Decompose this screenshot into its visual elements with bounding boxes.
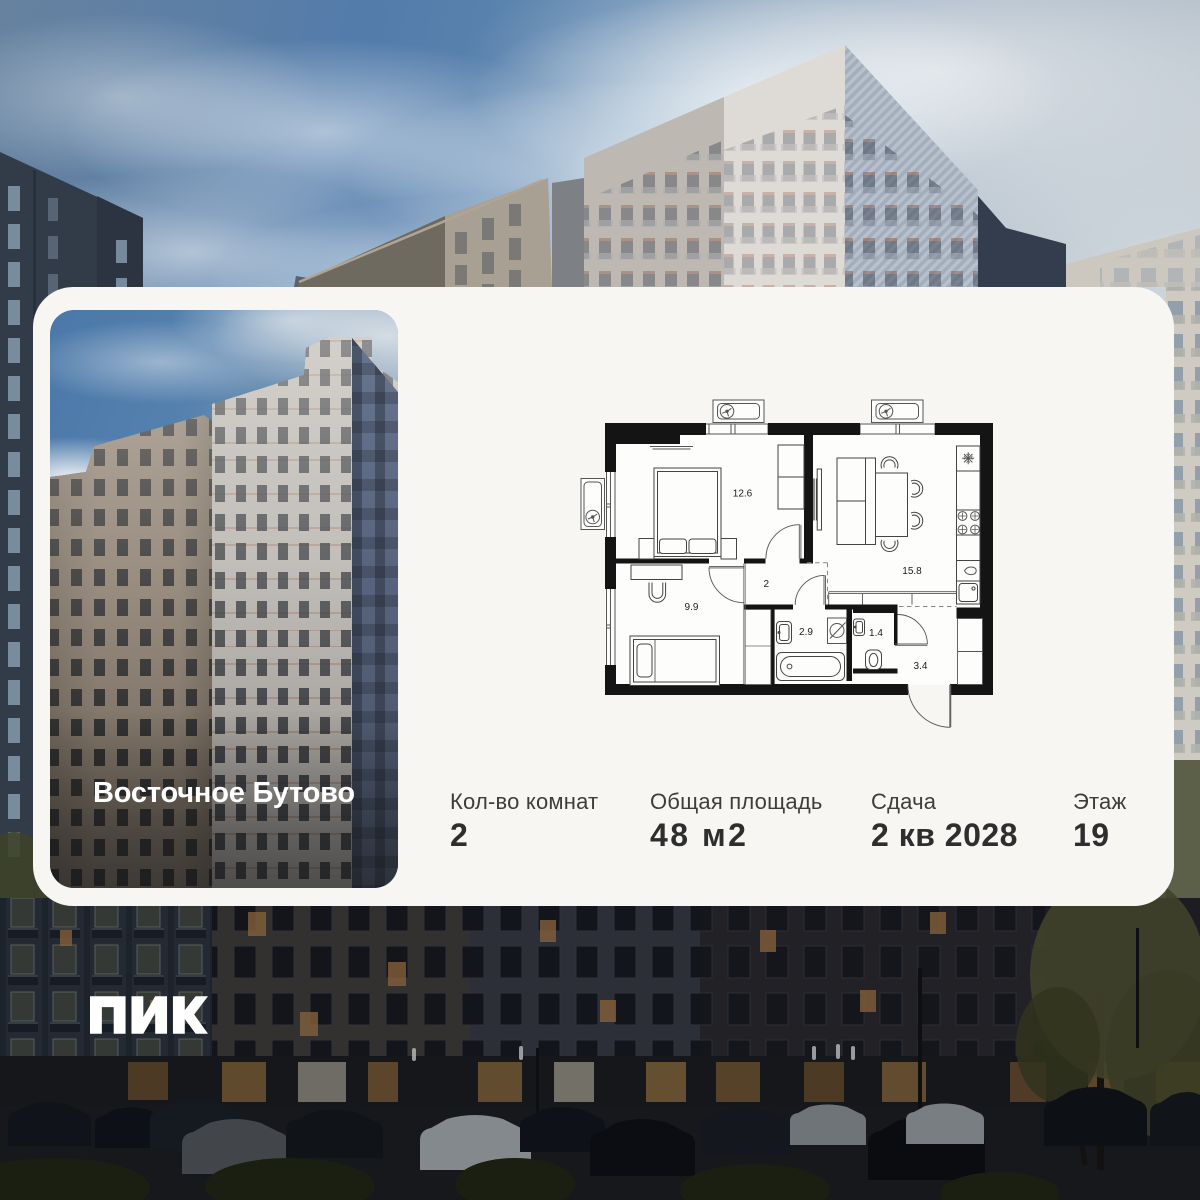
svg-text:1.4: 1.4	[869, 628, 883, 639]
svg-text:15.8: 15.8	[902, 566, 922, 577]
svg-text:2: 2	[764, 579, 770, 590]
svg-text:9.9: 9.9	[685, 602, 699, 613]
svg-text:12.6: 12.6	[733, 489, 753, 500]
svg-text:3.4: 3.4	[914, 661, 928, 672]
svg-text:2.9: 2.9	[799, 627, 813, 638]
